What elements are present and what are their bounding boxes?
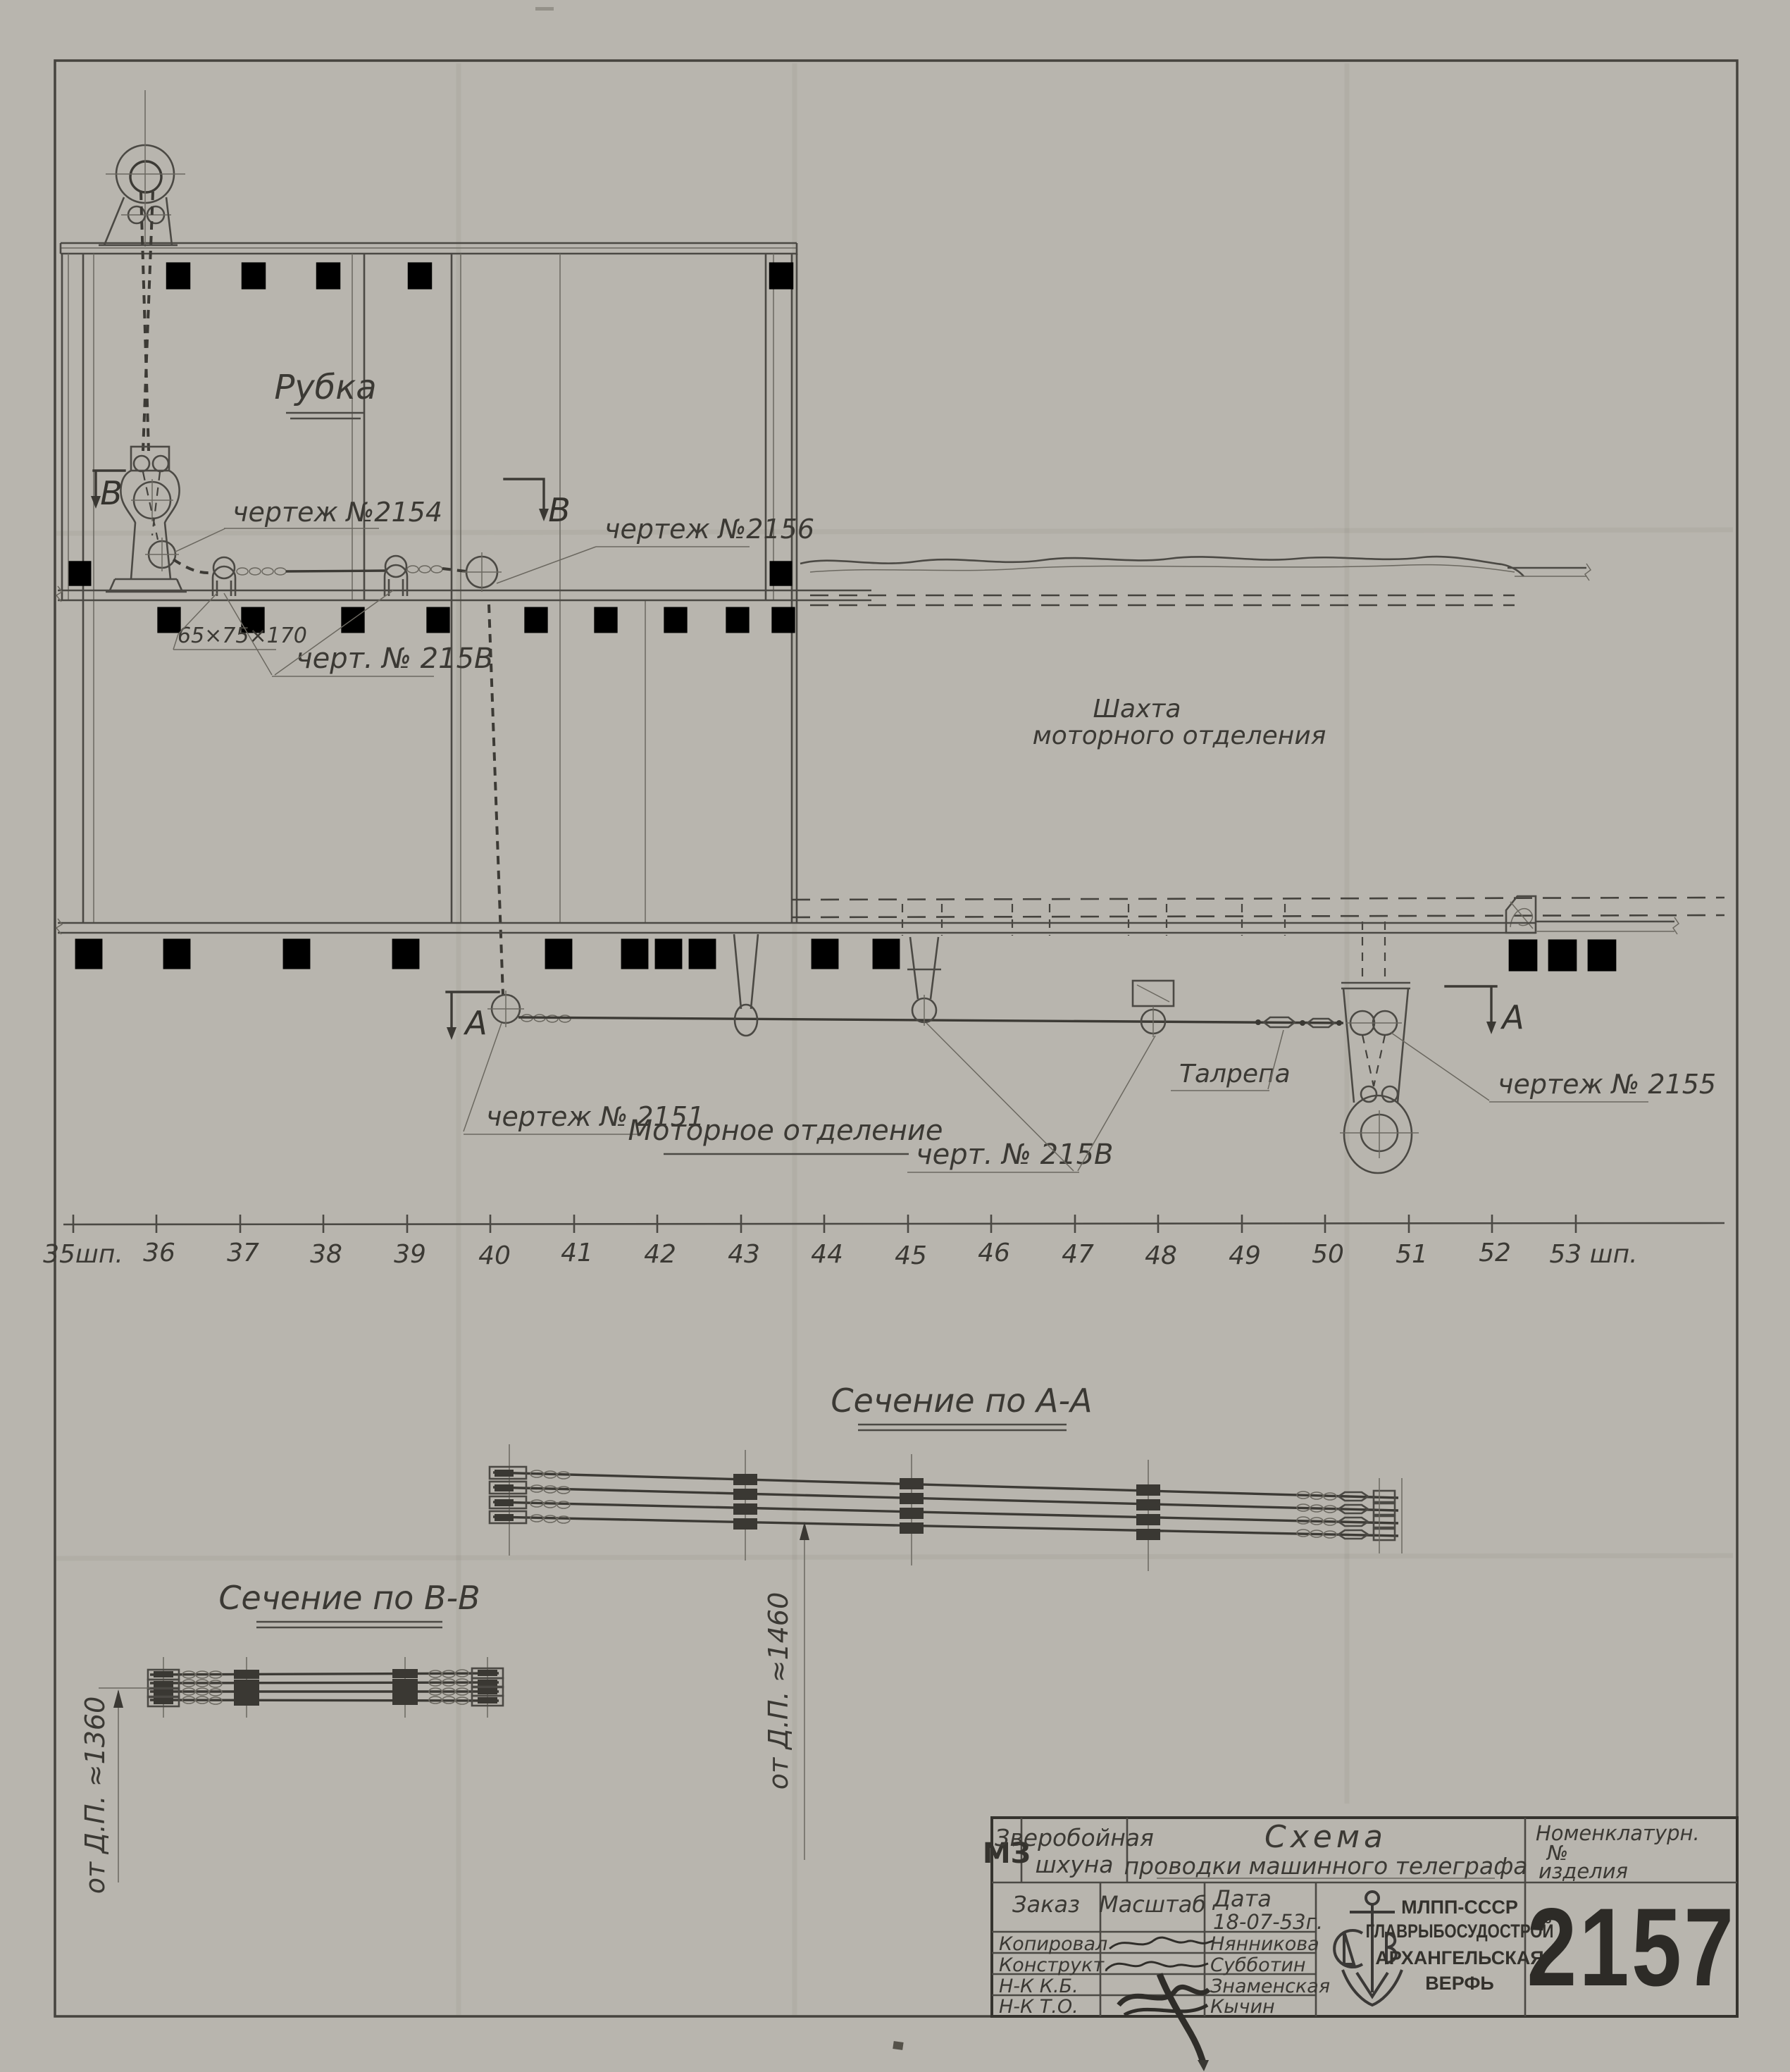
row-name-1: Субботин [1210, 1954, 1306, 1976]
dimension-dp-1360: от Д.П. ≈1360 [80, 1688, 150, 1894]
row-name-2: Знаменская [1210, 1975, 1330, 1997]
label-shahta-1: Шахта [1093, 695, 1181, 724]
label-motornoe: Моторное отделение [628, 1115, 943, 1147]
date-value: 18-07-53г. [1213, 1910, 1323, 1934]
section-a-a: Сечение по А-А [490, 1382, 1402, 1860]
frame-49: 49 [1229, 1241, 1261, 1270]
frame-41: 41 [561, 1239, 593, 1267]
cable-clamps [733, 1450, 1160, 1571]
row-role-2: Н-К К.Б. [999, 1975, 1079, 1997]
row-role-0: Копировал [999, 1933, 1107, 1955]
chain-links [237, 568, 286, 575]
section-b-b: Сечение по В-В [80, 1579, 503, 1894]
frame-36: 36 [143, 1239, 175, 1267]
main-deck [56, 919, 1616, 972]
frame-35: 35шп. [43, 1240, 123, 1269]
frame-42: 42 [644, 1240, 676, 1269]
org-line-2: ГЛАВРЫБОСУДОСТРОЙ [1366, 1921, 1554, 1942]
bb-clamps [148, 1657, 503, 1718]
dimension-dp-1460: от Д.П. ≈1460 [763, 1522, 809, 1860]
frame-48: 48 [1145, 1241, 1177, 1270]
row-name-0: Нянникова [1210, 1933, 1319, 1955]
date-label: Дата [1212, 1885, 1272, 1912]
doc-title-2: проводки машинного телеграфа [1124, 1852, 1527, 1880]
org-line-3: АРХАНГЕЛЬСКАЯ [1375, 1947, 1543, 1968]
section-b-right-label: В [548, 491, 571, 529]
label-chertezh-2155: чертеж № 2155 [1498, 1069, 1716, 1100]
section-bb-title: Сечение по В-В [218, 1579, 480, 1617]
section-a-right-label: А [1500, 998, 1524, 1036]
frame-43: 43 [728, 1240, 760, 1269]
row-name-3: Кычин [1210, 1996, 1275, 2018]
paper-creases [56, 63, 1733, 2015]
roof-beam-sections [166, 262, 793, 289]
below-deck-cable-run [487, 934, 1419, 1173]
label-chert-215v-lower: черт. № 215В [916, 1139, 1113, 1171]
dim-dp-1460-text: от Д.П. ≈1460 [763, 1592, 794, 1790]
frame-53: 53 шп. [1549, 1240, 1637, 1269]
cable-guide-2 [385, 556, 406, 577]
label-chertezh-2154: чертеж №2154 [232, 497, 442, 528]
row-role-3: Н-К Т.О. [999, 1996, 1079, 2018]
pulley-block-2155 [1340, 983, 1419, 1173]
section-b-left-label: В [100, 474, 123, 512]
org-line-1: МЛПП-СССР [1401, 1897, 1518, 1918]
vessel-name-1: Зверобойная [995, 1824, 1154, 1851]
annotations: Рубка чертеж №2154 чертеж №2156 65×75×17… [173, 368, 1716, 1172]
frame-47: 47 [1062, 1240, 1094, 1269]
row-role-1: Конструкт. [999, 1954, 1110, 1976]
scan-marks [535, 7, 904, 2050]
title-block: МЗ Зверобойная шхуна Схема проводки маши… [983, 1818, 1737, 2071]
order-label: Заказ [1012, 1891, 1080, 1918]
frame-38: 38 [310, 1240, 342, 1269]
chain-links [407, 566, 442, 573]
section-a-left-label: А [463, 1004, 487, 1042]
frame-50: 50 [1312, 1240, 1344, 1269]
scale-label: Масштаб [1099, 1891, 1206, 1918]
frame-51: 51 [1396, 1240, 1428, 1269]
doc-title-1: Схема [1264, 1819, 1387, 1855]
telegraph-wiring-drawing: В В А А Рубка чертеж №2154 чертеж №2156 … [0, 0, 1790, 2072]
border-frame [55, 61, 1737, 2016]
label-rubka: Рубка [274, 368, 376, 407]
frame-45: 45 [895, 1241, 927, 1270]
signature-scribbles [1106, 1937, 1213, 2071]
frame-44: 44 [811, 1240, 843, 1269]
label-chert-215v-upper: черт. № 215В [296, 643, 493, 675]
frame-52: 52 [1479, 1239, 1511, 1267]
engine-room-casing [792, 557, 1724, 982]
lower-telegraph-station [106, 447, 187, 592]
scanned-blueprint-sheet: В В А А Рубка чертеж №2154 чертеж №2156 … [0, 0, 1790, 2072]
floor-cable-run [173, 552, 503, 995]
doc-number: 2157 [1527, 1885, 1736, 2009]
frame-ruler: 35шп. 36 37 38 39 40 41 42 43 44 45 46 4… [43, 1215, 1724, 1270]
org-line-4: ВЕРФЬ [1425, 1973, 1494, 1994]
label-chertezh-2156: чертеж №2156 [604, 514, 814, 545]
frame-39: 39 [394, 1240, 426, 1269]
frame-46: 46 [978, 1239, 1010, 1267]
frame-37: 37 [227, 1239, 259, 1267]
label-65x75x170: 65×75×170 [178, 624, 307, 648]
nomenclature-3: изделия [1539, 1859, 1628, 1883]
cable-guide-1 [213, 557, 235, 578]
dim-dp-1360-text: от Д.П. ≈1360 [80, 1696, 111, 1894]
section-aa-title: Сечение по А-А [831, 1382, 1092, 1420]
label-talrepa: Талрепа [1179, 1060, 1291, 1088]
cable-hanger-sheave [735, 1005, 757, 1036]
vessel-name-2: шхуна [1035, 1851, 1113, 1878]
frame-40: 40 [478, 1241, 511, 1270]
label-shahta-2: моторного отделения [1033, 721, 1326, 750]
